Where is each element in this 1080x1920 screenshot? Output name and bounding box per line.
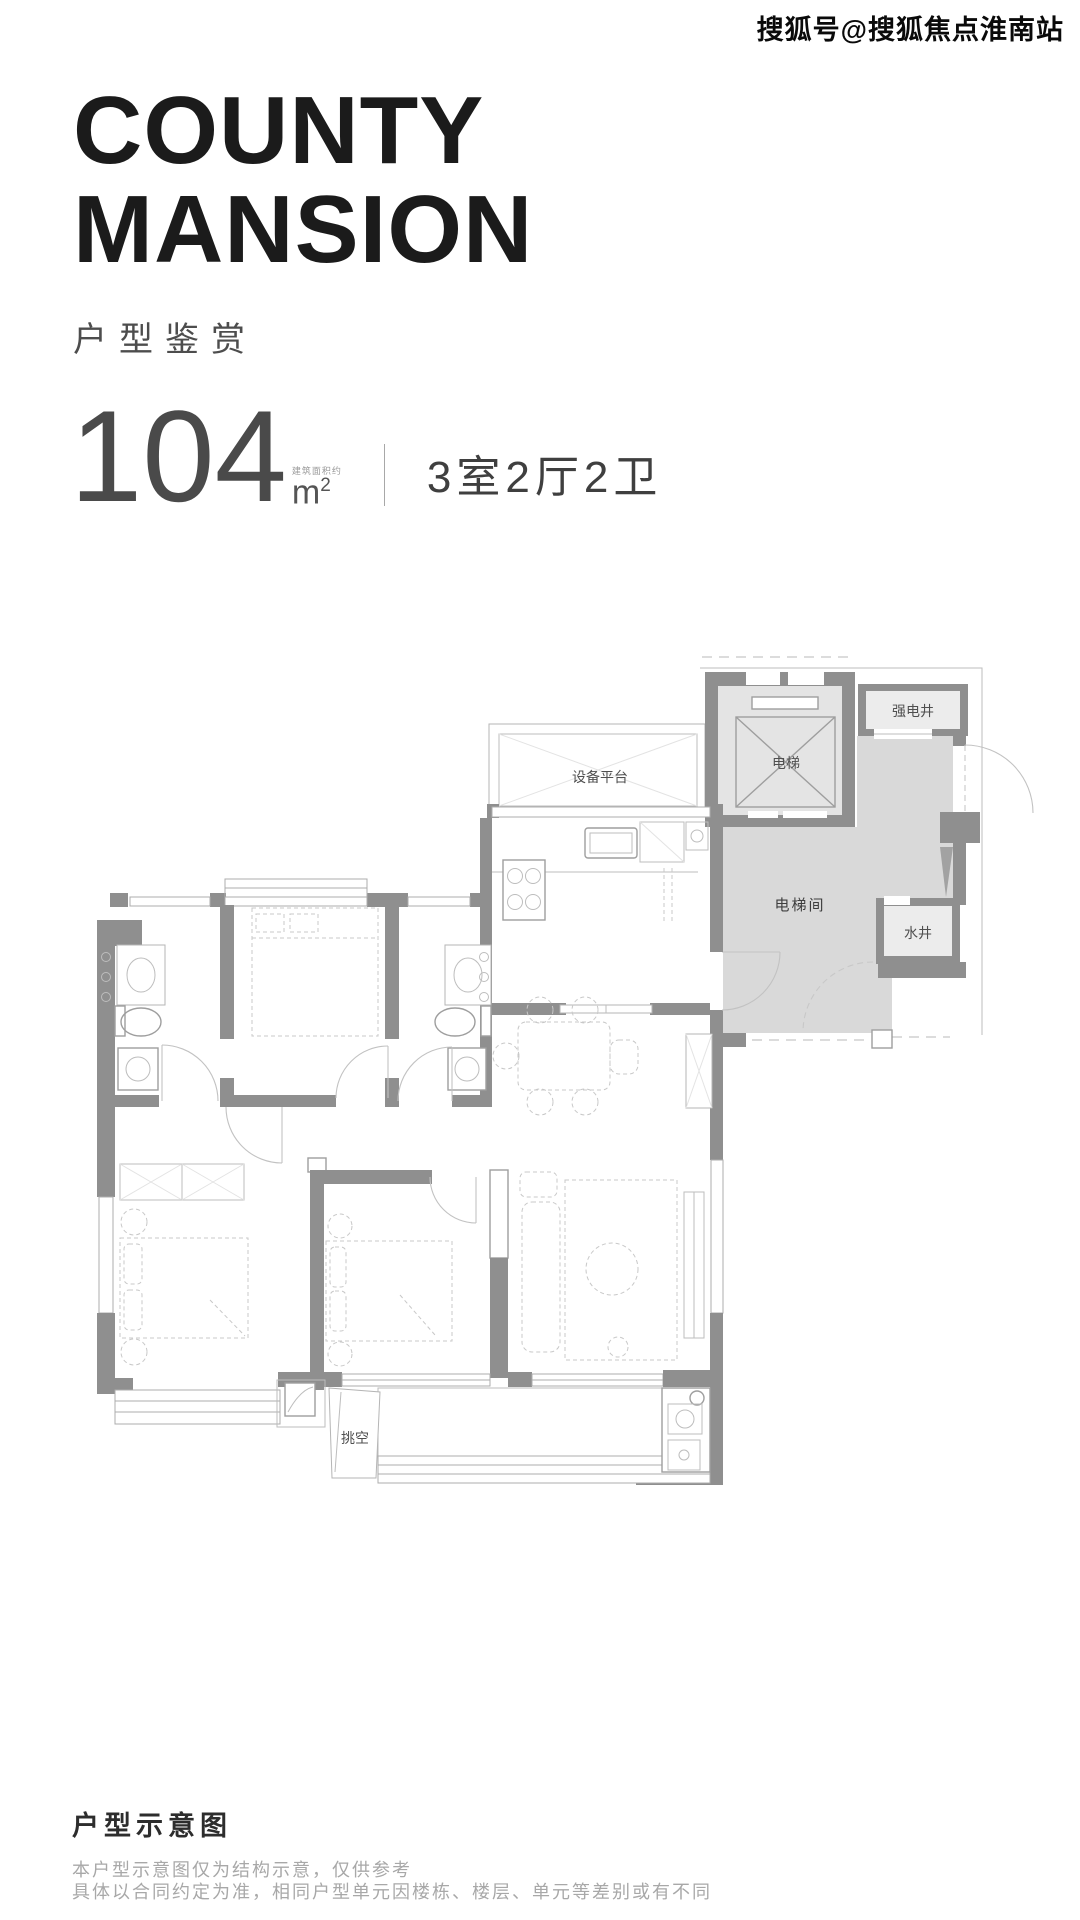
- footer: 户型示意图 本户型示意图仅为结构示意，仅供参考 具体以合同约定为准，相同户型单元…: [72, 1804, 712, 1903]
- bedroom-1: [120, 1107, 282, 1365]
- footer-heading: 户型示意图: [72, 1804, 712, 1843]
- void-area: [277, 1380, 380, 1478]
- label-void: 挑空: [341, 1430, 369, 1446]
- balconies: [115, 1388, 710, 1483]
- label-equipment-platform: 设备平台: [572, 769, 628, 785]
- bathroom-right: [398, 945, 491, 1101]
- living-room: [520, 1172, 704, 1360]
- label-elevator: 电梯: [772, 755, 800, 771]
- duct-shaft-box: [686, 1034, 712, 1108]
- top-exterior-windows: [110, 879, 487, 907]
- elevator-shaft: [705, 670, 855, 827]
- laundry-corner: [662, 1388, 710, 1472]
- floor-plan: 设备平台 电梯 强电井 电梯间 水井 挑空: [0, 0, 1080, 1920]
- bedroom-2: [326, 1177, 476, 1366]
- bedroom-middle: [252, 908, 388, 1098]
- equipment-platform: [489, 724, 705, 808]
- label-power-shaft: 强电井: [892, 703, 934, 719]
- label-water-shaft: 水井: [904, 925, 932, 941]
- label-elevator-hall: 电梯间: [774, 897, 825, 914]
- kitchen-fixtures: [492, 822, 708, 922]
- disclaimer-line-1: 本户型示意图仅为结构示意，仅供参考: [72, 1859, 712, 1881]
- disclaimer-line-2: 具体以合同约定为准，相同户型单元因楼栋、楼层、单元等差别或有不同: [72, 1881, 712, 1903]
- bathroom-left: [102, 945, 219, 1101]
